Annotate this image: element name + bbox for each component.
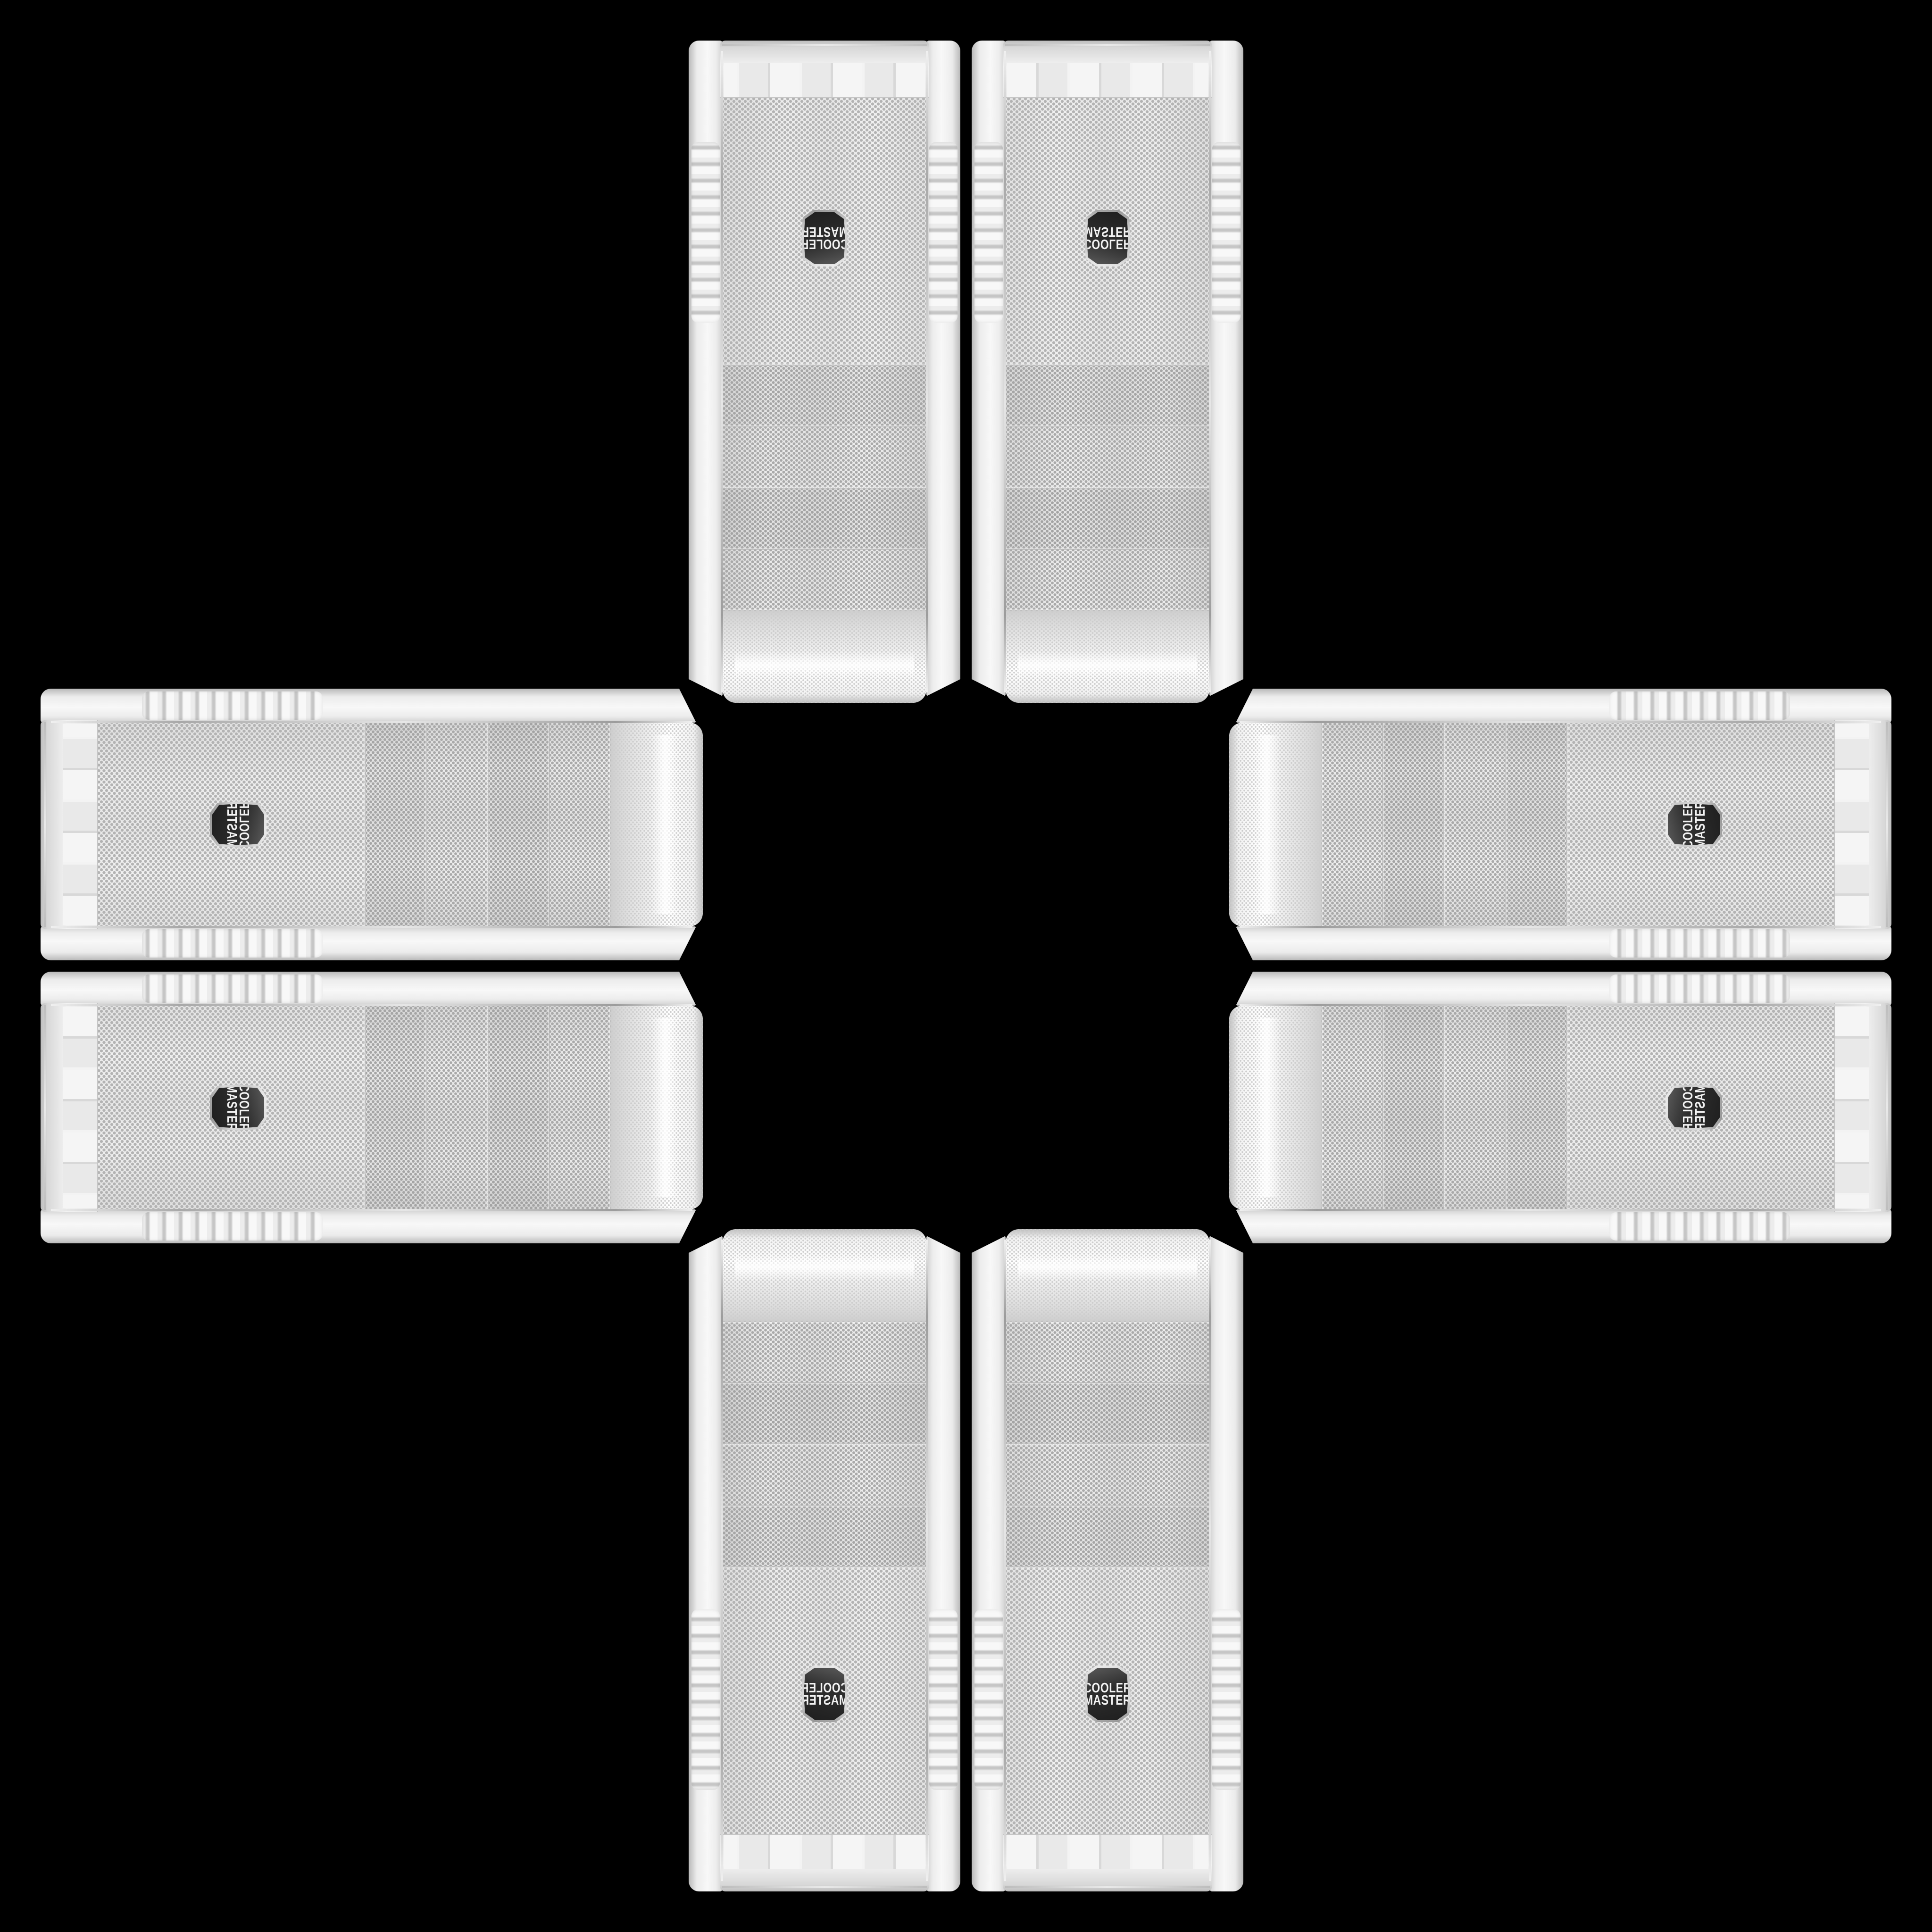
side-rail-right: [689, 41, 723, 696]
side-rail-right: [689, 1236, 723, 1891]
front-panel: [41, 723, 703, 926]
grip-ribs-left: [929, 1609, 958, 1790]
front-panel: [1229, 1006, 1891, 1209]
grip-ribs-left: [1609, 974, 1790, 1003]
badge-text-line2: MASTER: [225, 1084, 239, 1131]
bottom-bezel: [1003, 1834, 1212, 1891]
drive-bay-cover-2: [723, 1382, 926, 1443]
drive-bay-cover-1: [550, 723, 611, 926]
pc-case-front-panel: COOLER MASTER: [38, 689, 706, 960]
top-mesh-cap: [723, 1229, 926, 1321]
side-rail-left: [41, 926, 696, 960]
side-rail-right: [1209, 1236, 1243, 1891]
drive-bay-cover-3: [723, 427, 926, 489]
side-rail-left: [926, 1236, 960, 1891]
side-rail-left: [1236, 972, 1891, 1006]
front-panel: [41, 1006, 703, 1209]
pc-case-front-panel: COOLER MASTER: [1226, 972, 1894, 1243]
side-rail-left: [926, 41, 960, 696]
pc-case-front-panel: COOLER MASTER: [689, 38, 960, 706]
front-panel: [723, 41, 926, 703]
drive-bay-cover-3: [1443, 723, 1505, 926]
bottom-bezel: [720, 41, 929, 98]
top-mesh-cap: [1229, 1006, 1321, 1209]
grip-ribs-left: [974, 1609, 1003, 1790]
chrome-trim-left: [51, 1004, 692, 1006]
drive-bay-cover-2: [489, 1006, 550, 1209]
chrome-trim-right: [1240, 721, 1881, 723]
case-slot-bottom-right: COOLER MASTER: [972, 1226, 1243, 1894]
grip-ribs-right: [142, 1212, 322, 1241]
case-slot-top-right: COOLER MASTER: [972, 38, 1243, 706]
pc-case-front-panel: COOLER MASTER: [972, 38, 1243, 706]
badge-face: COOLER MASTER: [804, 1668, 845, 1720]
side-rail-left: [41, 972, 696, 1006]
chrome-trim-right: [51, 721, 692, 723]
badge-face: COOLER MASTER: [1668, 804, 1720, 845]
chrome-trim-right: [1209, 51, 1211, 692]
drive-bay-cover-1: [1321, 1006, 1382, 1209]
grip-ribs-right: [1609, 1212, 1790, 1241]
grip-ribs-right: [142, 691, 322, 720]
chrome-trim-left: [926, 51, 928, 692]
front-panel: [1006, 41, 1209, 703]
side-rail-right: [1236, 689, 1891, 723]
side-rail-left: [1236, 926, 1891, 960]
cooler-master-badge-icon: COOLER MASTER: [1084, 210, 1131, 266]
drive-bay-cover-3: [427, 723, 489, 926]
bottom-bezel: [720, 1834, 929, 1891]
top-mesh-cap: [611, 723, 703, 926]
chrome-trim-right: [51, 1209, 692, 1211]
bottom-bezel: [1834, 720, 1891, 929]
bottom-bezel: [41, 720, 98, 929]
cooler-master-badge-icon: COOLER MASTER: [1084, 1666, 1131, 1722]
side-rail-right: [1236, 1209, 1891, 1243]
badge-text-line2: MASTER: [1693, 801, 1707, 848]
pc-case-front-panel: COOLER MASTER: [38, 972, 706, 1243]
bottom-bezel: [1003, 41, 1212, 98]
chrome-trim-right: [1240, 1209, 1881, 1211]
drive-bay-cover-3: [1006, 427, 1209, 489]
badge-text-line2: MASTER: [801, 225, 848, 239]
drive-bay-cover-3: [1006, 1443, 1209, 1505]
drive-bay-cover-1: [1321, 723, 1382, 926]
badge-face: COOLER MASTER: [212, 1087, 264, 1128]
front-panel: [1006, 1229, 1209, 1891]
case-slot-right-bottom: COOLER MASTER: [1226, 972, 1894, 1243]
badge-text-line2: MASTER: [1693, 1084, 1707, 1131]
chrome-trim-right: [721, 1240, 723, 1881]
grip-ribs-left: [142, 929, 322, 958]
drive-bay-cover-2: [489, 723, 550, 926]
drive-bay-cover-4: [366, 1006, 427, 1209]
front-panel: [1229, 723, 1891, 926]
cooler-master-badge-icon: COOLER MASTER: [210, 801, 266, 848]
black-backdrop: COOLER MASTER COOLER MASTER: [0, 0, 1932, 1932]
grip-ribs-right: [691, 1609, 720, 1790]
drive-bay-cover-4: [366, 723, 427, 926]
drive-bay-cover-4: [1505, 1006, 1566, 1209]
grip-ribs-left: [974, 142, 1003, 322]
grip-ribs-right: [691, 142, 720, 322]
pc-case-front-panel: COOLER MASTER: [1226, 689, 1894, 960]
side-rail-right: [1209, 41, 1243, 696]
drive-bay-cover-4: [723, 1505, 926, 1566]
chrome-trim-left: [51, 926, 692, 928]
cooler-master-badge-icon: COOLER MASTER: [801, 210, 848, 266]
case-slot-left-bottom: COOLER MASTER: [38, 972, 706, 1243]
top-mesh-cap: [611, 1006, 703, 1209]
chrome-trim-left: [1240, 1004, 1881, 1006]
top-mesh-cap: [723, 611, 926, 703]
badge-face: COOLER MASTER: [212, 804, 264, 845]
cooler-master-badge-icon: COOLER MASTER: [210, 1084, 266, 1131]
chrome-trim-left: [1004, 1240, 1006, 1881]
grip-ribs-right: [1212, 1609, 1241, 1790]
pc-case-front-panel: COOLER MASTER: [972, 1226, 1243, 1894]
case-slot-right-top: COOLER MASTER: [1226, 689, 1894, 960]
case-slot-bottom-left: COOLER MASTER: [689, 1226, 960, 1894]
top-mesh-cap: [1006, 1229, 1209, 1321]
top-mesh-cap: [1006, 611, 1209, 703]
drive-bay-cover-1: [550, 1006, 611, 1209]
drive-bay-cover-1: [723, 550, 926, 611]
drive-bay-cover-2: [723, 489, 926, 550]
grip-ribs-right: [1609, 691, 1790, 720]
badge-text-line2: MASTER: [225, 801, 239, 848]
cooler-master-badge-icon: COOLER MASTER: [1666, 1084, 1722, 1131]
side-rail-right: [41, 689, 696, 723]
drive-bay-cover-1: [1006, 1321, 1209, 1382]
front-panel: [723, 1229, 926, 1891]
chrome-trim-left: [926, 1240, 928, 1881]
drive-bay-cover-2: [1382, 723, 1443, 926]
grip-ribs-left: [142, 974, 322, 1003]
drive-bay-cover-4: [1505, 723, 1566, 926]
drive-bay-cover-4: [1006, 366, 1209, 427]
drive-bay-cover-2: [1006, 489, 1209, 550]
drive-bay-cover-3: [1443, 1006, 1505, 1209]
drive-bay-cover-2: [1382, 1006, 1443, 1209]
chrome-trim-left: [1240, 926, 1881, 928]
pc-case-front-panel: COOLER MASTER: [689, 1226, 960, 1894]
grip-ribs-left: [1609, 929, 1790, 958]
bottom-bezel: [41, 1003, 98, 1212]
badge-text-line2: MASTER: [1084, 1693, 1131, 1707]
badge-text-line2: MASTER: [801, 1693, 848, 1707]
badge-face: COOLER MASTER: [1668, 1087, 1720, 1128]
side-rail-left: [972, 1236, 1006, 1891]
badge-face: COOLER MASTER: [1087, 212, 1128, 264]
side-rail-right: [41, 1209, 696, 1243]
badge-face: COOLER MASTER: [1087, 1668, 1128, 1720]
chrome-trim-right: [721, 51, 723, 692]
drive-bay-cover-2: [1006, 1382, 1209, 1443]
case-slot-left-top: COOLER MASTER: [38, 689, 706, 960]
cooler-master-badge-icon: COOLER MASTER: [801, 1666, 848, 1722]
drive-bay-cover-4: [1006, 1505, 1209, 1566]
side-rail-left: [972, 41, 1006, 696]
case-slot-top-left: COOLER MASTER: [689, 38, 960, 706]
badge-face: COOLER MASTER: [804, 212, 845, 264]
drive-bay-cover-1: [723, 1321, 926, 1382]
badge-text-line2: MASTER: [1084, 225, 1131, 239]
chrome-trim-right: [1209, 1240, 1211, 1881]
drive-bay-cover-3: [723, 1443, 926, 1505]
bottom-bezel: [1834, 1003, 1891, 1212]
drive-bay-cover-4: [723, 366, 926, 427]
drive-bay-cover-3: [427, 1006, 489, 1209]
cooler-master-badge-icon: COOLER MASTER: [1666, 801, 1722, 848]
grip-ribs-right: [1212, 142, 1241, 322]
grip-ribs-left: [929, 142, 958, 322]
top-mesh-cap: [1229, 723, 1321, 926]
chrome-trim-left: [1004, 51, 1006, 692]
drive-bay-cover-1: [1006, 550, 1209, 611]
